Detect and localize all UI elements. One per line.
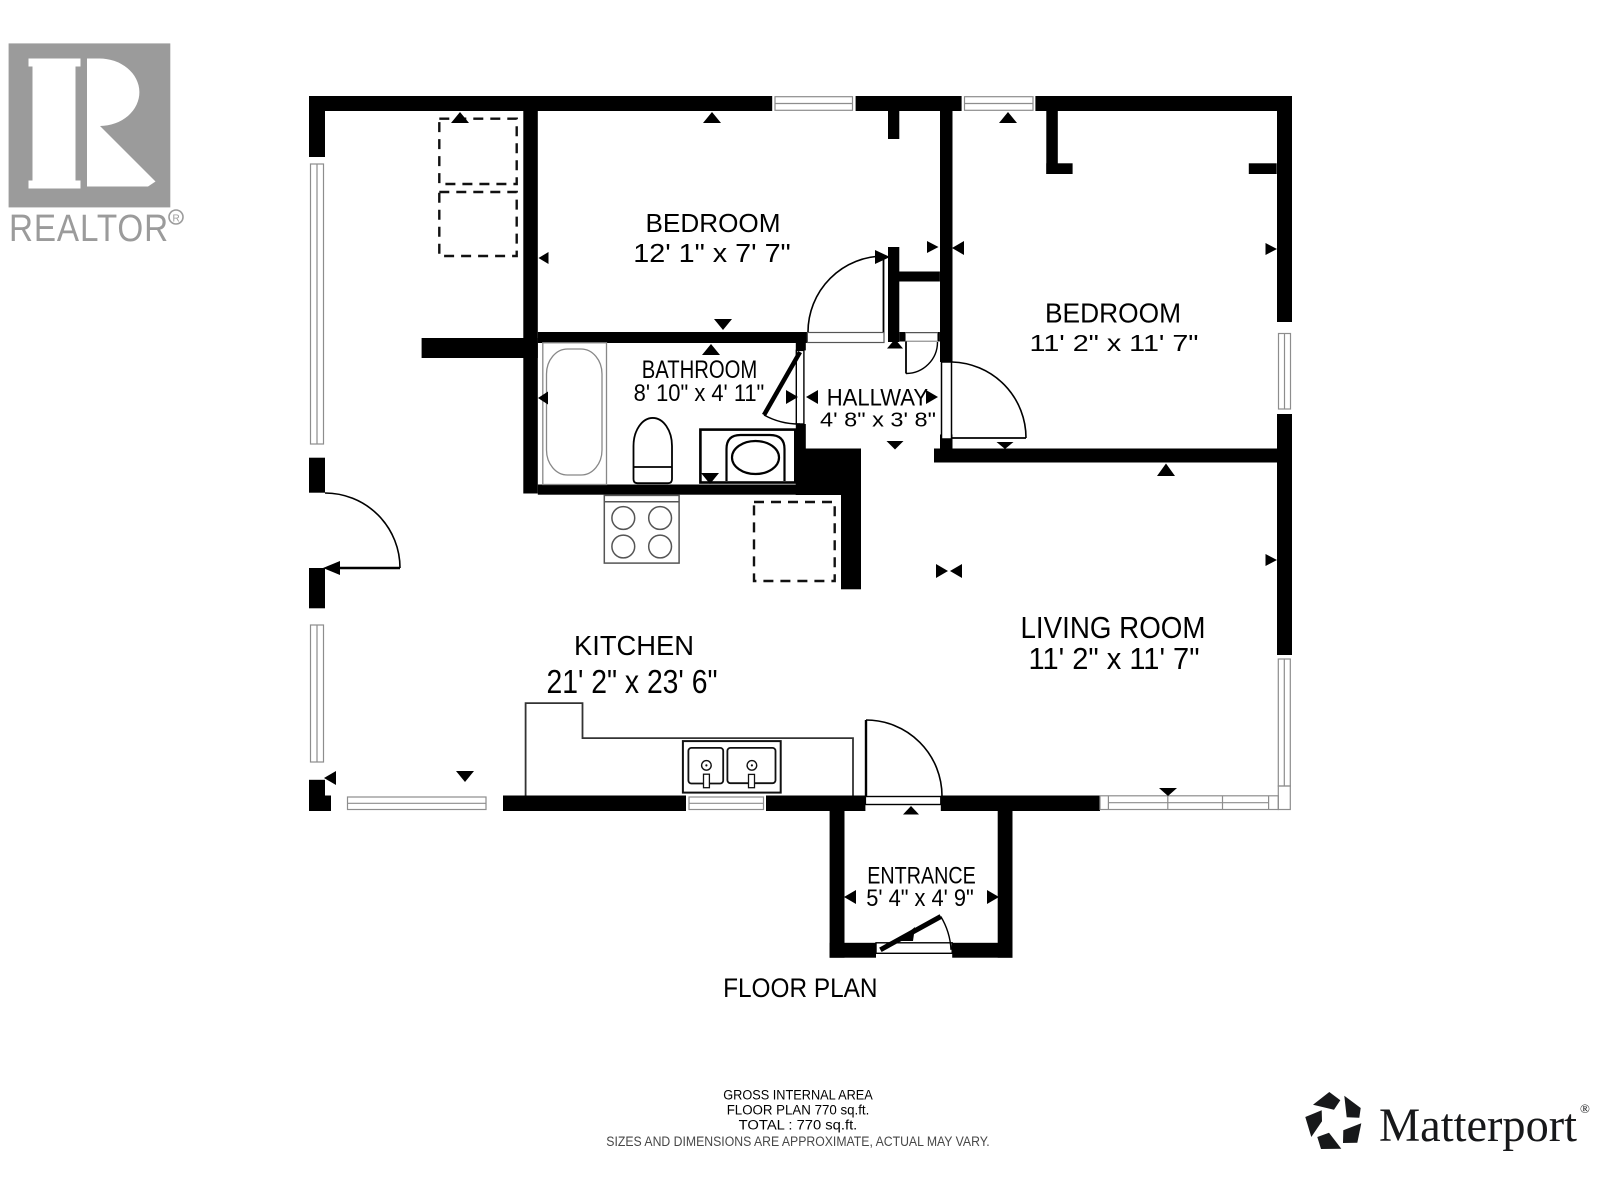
svg-text:REALTOR: REALTOR <box>9 208 169 250</box>
svg-text:8' 10" x 4' 11": 8' 10" x 4' 11" <box>634 380 765 407</box>
svg-text:BEDROOM: BEDROOM <box>1045 298 1181 329</box>
svg-text:HALLWAY: HALLWAY <box>827 385 928 411</box>
svg-text:R: R <box>173 214 180 225</box>
svg-text:KITCHEN: KITCHEN <box>574 630 694 661</box>
svg-text:5' 4" x 4' 9": 5' 4" x 4' 9" <box>866 885 974 912</box>
svg-text:LIVING ROOM: LIVING ROOM <box>1021 611 1206 645</box>
svg-text:TOTAL : 770 sq.ft.: TOTAL : 770 sq.ft. <box>739 1118 858 1134</box>
svg-text:BEDROOM: BEDROOM <box>646 210 781 238</box>
svg-text:GROSS INTERNAL AREA: GROSS INTERNAL AREA <box>723 1088 873 1104</box>
svg-text:12' 1" x 7' 7": 12' 1" x 7' 7" <box>633 240 791 268</box>
svg-text:4' 8" x 3' 8": 4' 8" x 3' 8" <box>820 410 936 432</box>
svg-text:Matterport: Matterport <box>1379 1099 1578 1152</box>
svg-text:SIZES AND DIMENSIONS ARE APPRO: SIZES AND DIMENSIONS ARE APPROXIMATE, AC… <box>606 1134 989 1150</box>
svg-text:11' 2" x 11' 7": 11' 2" x 11' 7" <box>1029 641 1200 676</box>
svg-text:®: ® <box>1580 1101 1590 1116</box>
svg-text:11' 2" x 11' 7": 11' 2" x 11' 7" <box>1030 330 1199 356</box>
svg-text:21' 2" x 23' 6": 21' 2" x 23' 6" <box>547 663 718 700</box>
svg-text:FLOOR PLAN 770 sq.ft.: FLOOR PLAN 770 sq.ft. <box>727 1103 870 1119</box>
svg-text:FLOOR PLAN: FLOOR PLAN <box>723 973 877 1003</box>
